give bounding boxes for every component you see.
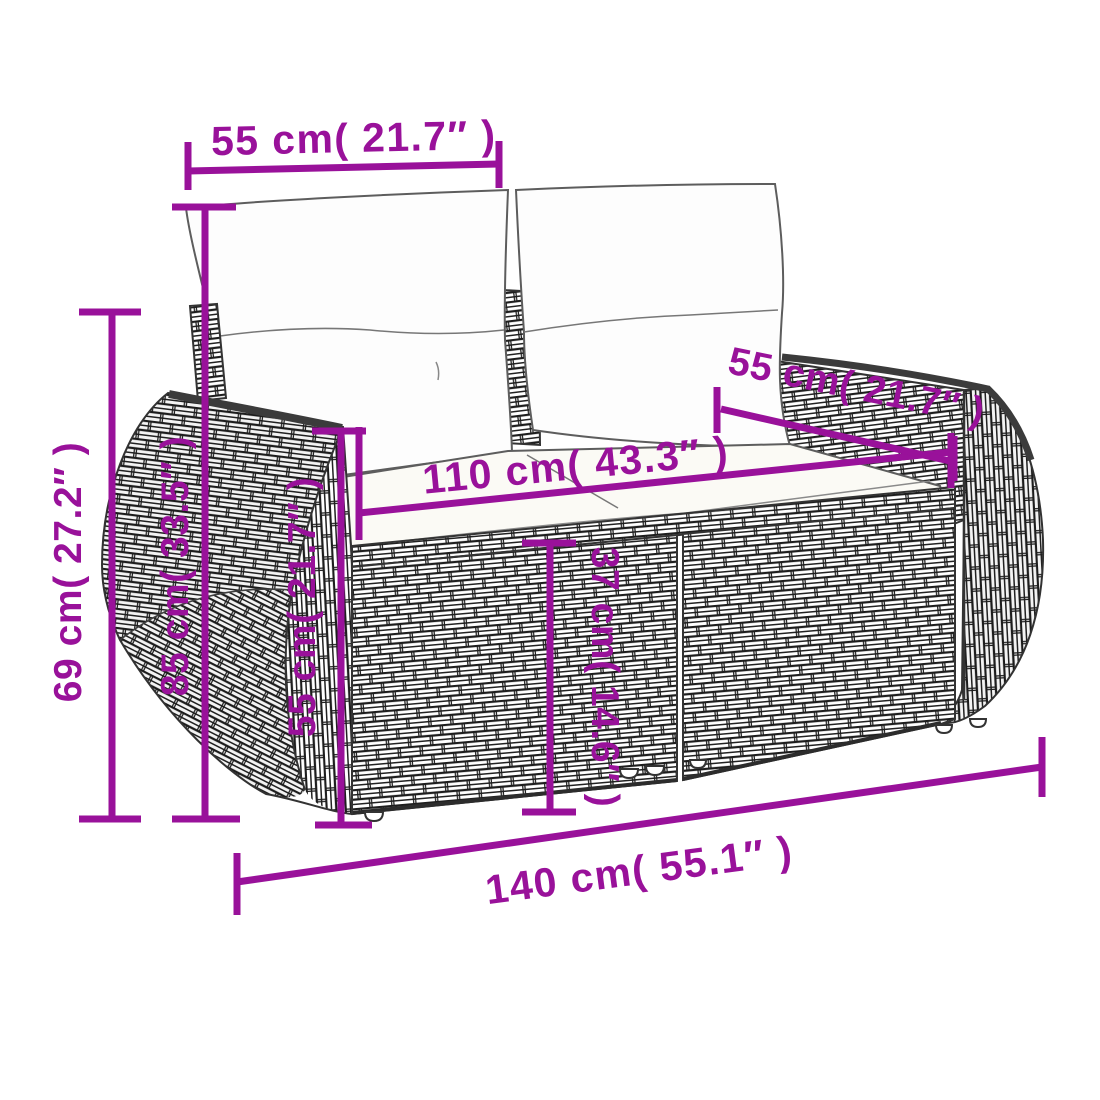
svg-text:55 cm( 21.7″ ): 55 cm( 21.7″ ) bbox=[211, 112, 497, 164]
svg-text:69 cm( 27.2″ ): 69 cm( 27.2″ ) bbox=[47, 442, 90, 703]
svg-text:85 cm( 33.5″ ): 85 cm( 33.5″ ) bbox=[154, 436, 197, 697]
svg-text:37 cm( 14.6″ ): 37 cm( 14.6″ ) bbox=[583, 547, 626, 808]
svg-text:55 cm( 21.7″ ): 55 cm( 21.7″ ) bbox=[281, 477, 324, 738]
